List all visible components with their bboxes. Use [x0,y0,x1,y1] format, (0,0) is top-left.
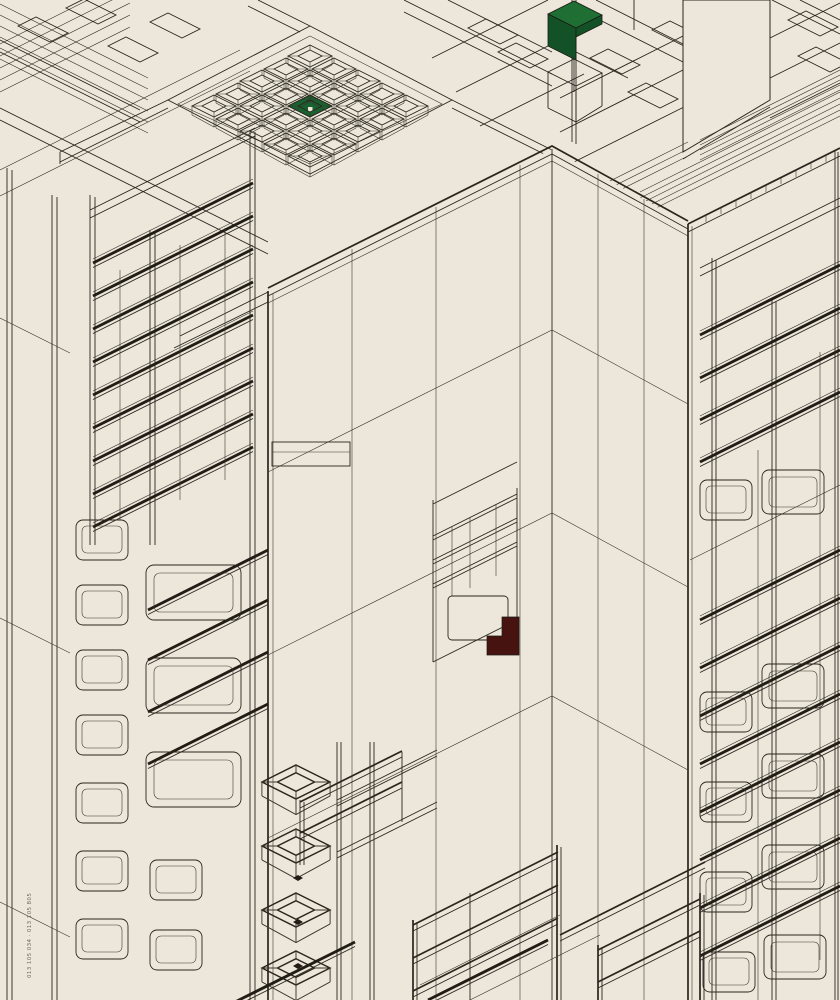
axonometric-drawing: 013 105 034 · 013 105 805 [0,0,840,1000]
tower-face-left [268,149,552,1000]
credit-caption: 013 105 034 · 013 105 805 [27,893,33,978]
central-tower [268,146,692,1000]
artwork-page: 013 105 034 · 013 105 805 [0,0,840,1000]
tower-face-right [552,149,688,1000]
